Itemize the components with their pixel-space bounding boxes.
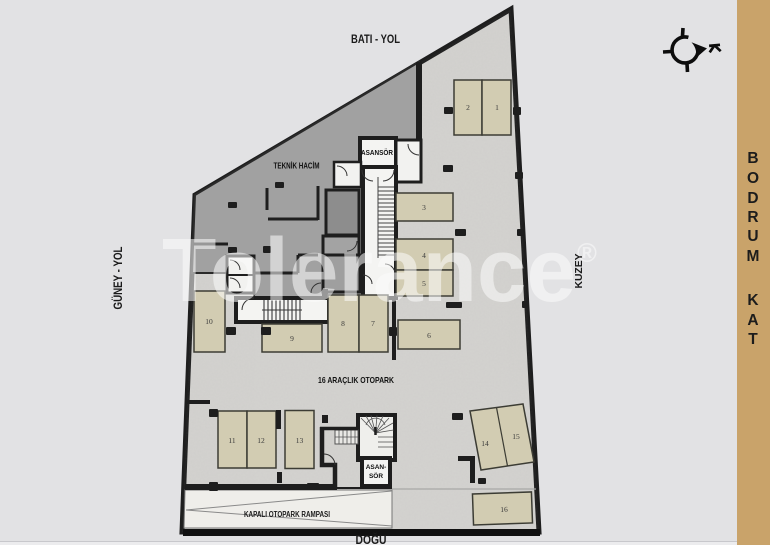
svg-text:3: 3 [422,203,426,212]
svg-text:O: O [747,170,759,187]
svg-text:ASAN-: ASAN- [366,464,387,471]
svg-text:KUZEY: KUZEY [573,254,585,289]
svg-text:16 ARAÇLIK OTOPARK: 16 ARAÇLIK OTOPARK [318,375,395,385]
svg-text:1: 1 [495,103,499,112]
svg-text:DOĞU: DOĞU [356,532,387,545]
svg-text:12: 12 [257,436,265,445]
svg-text:U: U [747,228,758,245]
svg-text:KAPALI OTOPARK RAMPASI: KAPALI OTOPARK RAMPASI [244,510,330,519]
svg-text:16: 16 [500,505,508,514]
svg-text:9: 9 [290,334,294,343]
svg-text:R: R [747,209,758,226]
svg-text:K: K [747,292,759,309]
svg-text:D: D [747,190,758,207]
svg-text:SÖR: SÖR [369,471,383,480]
svg-text:M: M [747,248,760,265]
svg-text:14: 14 [481,439,489,448]
svg-text:BATI - YOL: BATI - YOL [351,32,400,46]
svg-text:2: 2 [466,103,470,112]
svg-text:11: 11 [228,436,235,445]
svg-text:ASANSÖR: ASANSÖR [361,148,393,157]
svg-text:B: B [747,150,758,167]
svg-text:13: 13 [296,436,304,445]
svg-text:Tolerance: Tolerance [162,221,576,321]
svg-text:GÜNEY - YOL: GÜNEY - YOL [110,247,125,310]
svg-text:6: 6 [427,331,431,340]
svg-text:A: A [747,312,758,329]
svg-text:15: 15 [512,432,520,441]
svg-text:TEKNİK HACİM: TEKNİK HACİM [274,162,320,171]
svg-text:T: T [748,331,758,348]
